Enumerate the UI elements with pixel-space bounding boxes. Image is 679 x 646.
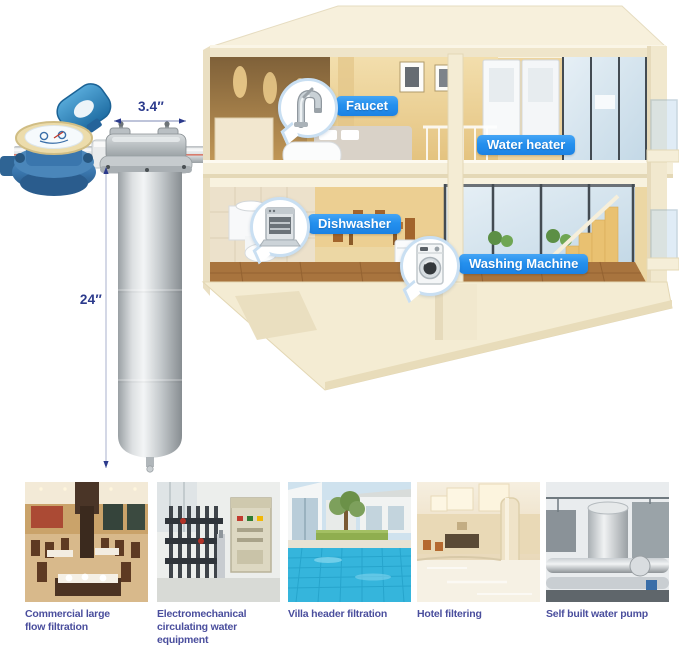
mid-floor-slab	[203, 160, 673, 178]
photo-hotel-lobby	[417, 482, 540, 602]
photo-villa-pool	[288, 482, 411, 602]
washing-machine-callout	[400, 236, 460, 296]
dishwasher-label-pill: Dishwasher	[308, 214, 401, 234]
photo-restaurant-interior	[25, 482, 148, 602]
photo-water-treatment-equipment	[157, 482, 280, 602]
water-meter	[0, 80, 119, 196]
width-dimension-line	[114, 118, 186, 123]
faucet-label-pill: Faucet	[336, 96, 398, 116]
washing-machine-icon	[403, 239, 457, 293]
caption-hotel-filtering: Hotel filtering	[417, 608, 547, 621]
height-dimension-label: 24″	[62, 292, 102, 307]
right-wall-balconies	[647, 46, 679, 300]
house-roof	[210, 6, 666, 57]
filter-head	[100, 121, 192, 173]
upper-floor-windows	[563, 52, 647, 162]
water-heater-label-pill: Water heater	[477, 135, 575, 155]
width-dimension-label: 3.4″	[127, 99, 175, 114]
house-upper-floor	[210, 46, 647, 168]
faucet-icon	[281, 81, 335, 135]
house-base-slab	[203, 282, 672, 390]
dishwasher-icon	[253, 200, 307, 254]
dishwasher-callout	[250, 197, 310, 257]
filter-body	[118, 172, 182, 472]
caption-commercial-filtration: Commercial large flow filtration	[25, 608, 131, 634]
caption-villa-filtration: Villa header filtration	[288, 608, 424, 621]
faucet-callout	[278, 78, 338, 138]
washing-machine-label-pill: Washing Machine	[459, 254, 588, 274]
photo-rooftop-water-pump	[546, 482, 669, 602]
caption-self-built-pump: Self built water pump	[546, 608, 679, 621]
caption-electromechanical-equipment: Electromechanical circulating water equi…	[157, 608, 269, 646]
height-dimension-line	[103, 167, 108, 468]
product-infographic: 3.4″ 24″	[0, 0, 679, 646]
